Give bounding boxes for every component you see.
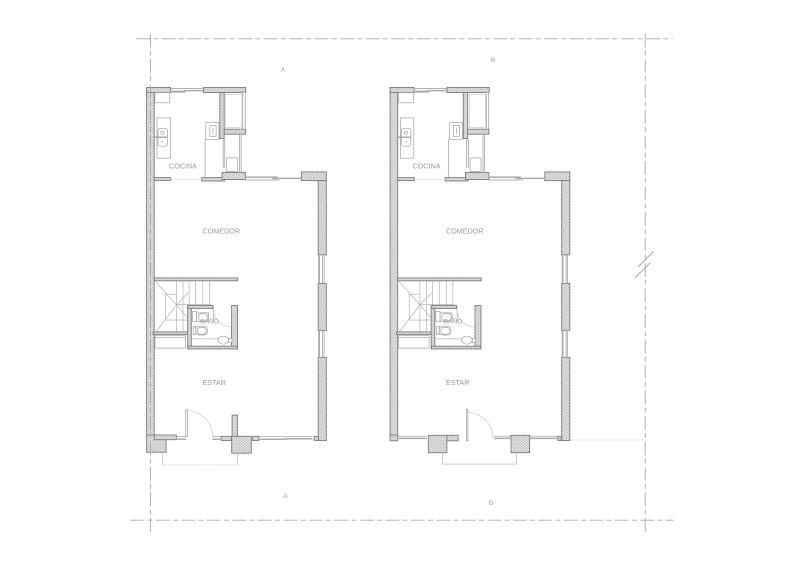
svg-text:B: B bbox=[491, 57, 495, 64]
svg-text:B: B bbox=[489, 500, 493, 507]
svg-text:A: A bbox=[283, 493, 288, 500]
svg-text:A: A bbox=[281, 67, 286, 74]
